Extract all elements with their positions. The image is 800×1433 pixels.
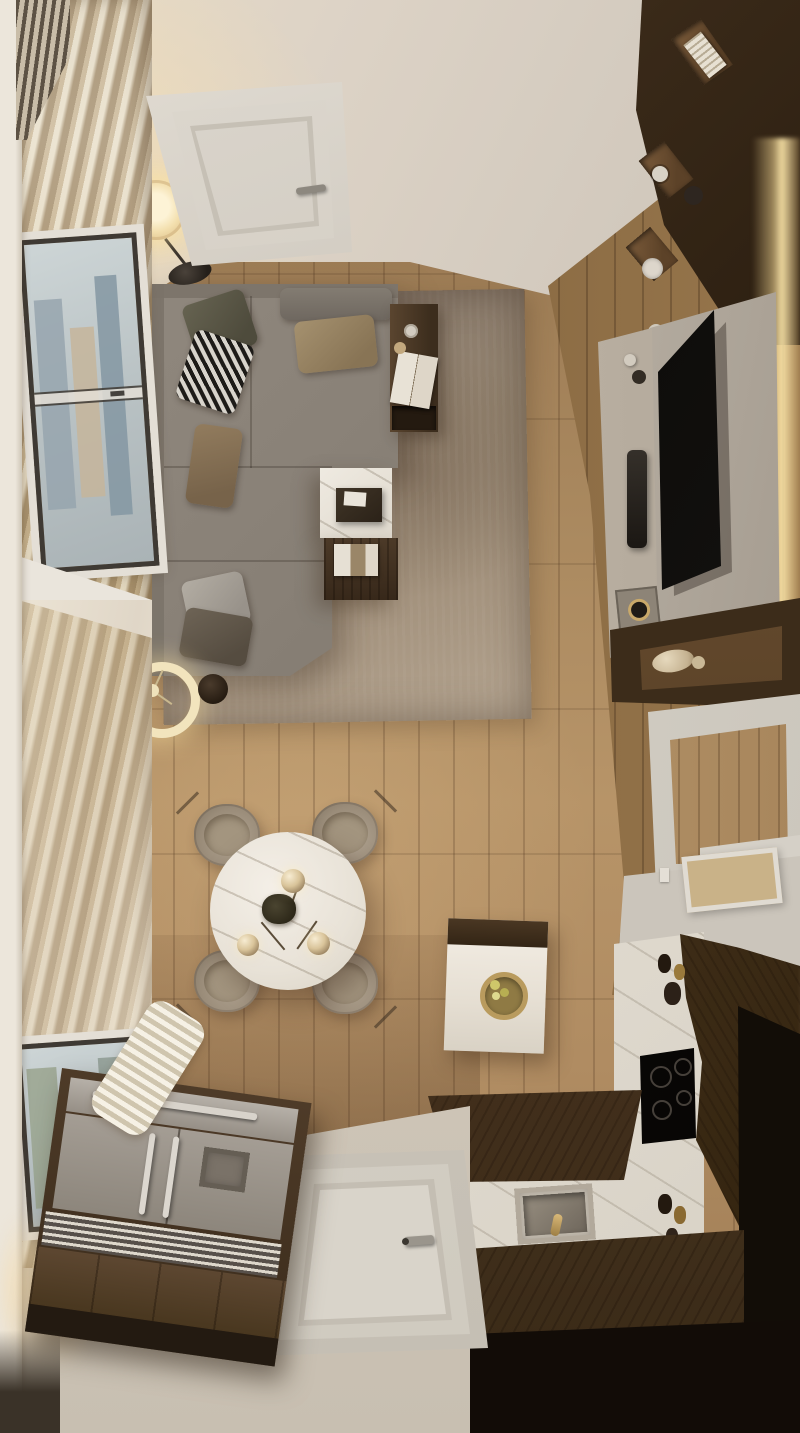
fruit: [492, 992, 500, 1000]
sheer-overlay: [0, 600, 152, 1070]
cushion-seam: [164, 560, 332, 562]
dark-corner: [0, 1330, 60, 1433]
small-dish: [394, 342, 406, 354]
oil-bottle: [674, 1206, 686, 1224]
burner-ring: [652, 1100, 672, 1120]
island-walnut-band: [447, 918, 548, 947]
fruit: [500, 988, 509, 997]
fruit: [490, 980, 500, 990]
kitchen-bottle: [658, 954, 671, 973]
oil-bottle: [658, 1194, 672, 1214]
paper-card: [344, 491, 367, 507]
fridge-column: [25, 1068, 312, 1366]
kettle: [664, 982, 681, 1005]
window-city-view: [18, 232, 159, 573]
taupe-pillow: [294, 314, 379, 374]
pendant-globe: [237, 934, 259, 956]
burner-ring: [676, 1090, 692, 1106]
apartment-top-view-photo: [0, 0, 800, 1433]
open-magazine: [334, 544, 378, 576]
burner-ring: [650, 1066, 672, 1088]
water-dispenser: [199, 1147, 250, 1193]
pendant-globe: [281, 869, 305, 893]
drinking-glass: [404, 324, 418, 338]
centerpiece-plant: [262, 894, 296, 924]
kitchen-bottle: [674, 964, 685, 980]
picture-frame: [681, 847, 782, 913]
burner-ring: [674, 1058, 692, 1076]
light-switch: [660, 868, 669, 882]
pendant-globe: [307, 932, 330, 955]
lamp-side-disc: [198, 674, 228, 704]
side-table-shelf: [392, 406, 436, 430]
window-latch: [110, 391, 124, 397]
entry-door-handle-base: [402, 1238, 409, 1245]
back-cushion: [280, 288, 392, 320]
